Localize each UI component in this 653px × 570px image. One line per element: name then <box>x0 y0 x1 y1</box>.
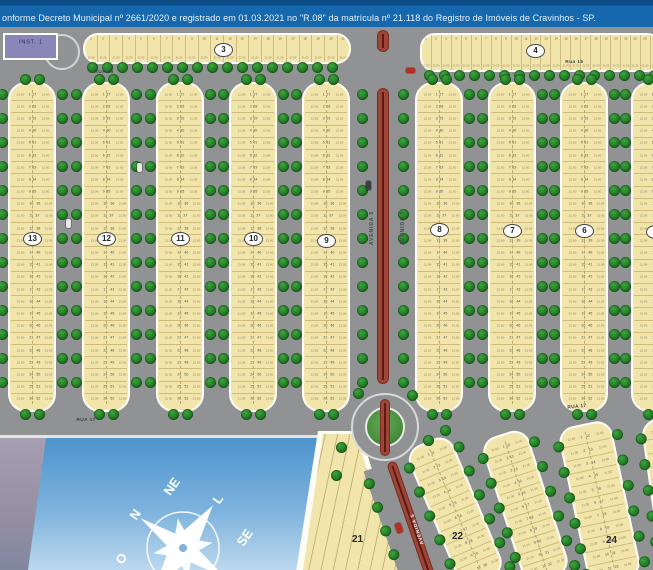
lot-dim-label: 21.00 <box>449 191 457 194</box>
lot-row: 21.00144021.00 <box>491 246 533 258</box>
tree-icon <box>117 62 128 73</box>
lot-dim-label: 21.00 <box>569 178 577 181</box>
lot-row: 21.00164221.00 <box>563 271 605 283</box>
lot-number: 5 <box>323 142 325 145</box>
lot-dim-label: 21.00 <box>311 178 319 181</box>
lot-row: 21.0043021.00 <box>232 125 274 137</box>
lot-row: 21.0093521.00 <box>232 186 274 198</box>
tree-icon <box>452 440 466 454</box>
lot-dim-label: 21.00 <box>119 337 127 340</box>
lot-dim-label: 21.00 <box>569 312 577 315</box>
lot-dim-label: 21.00 <box>339 215 347 218</box>
lot-row: 21.00204621.00 <box>85 320 127 332</box>
lot-row: 21.00224821.00 <box>305 344 347 356</box>
lot-number: 11 <box>581 215 585 218</box>
tree-icon <box>205 377 216 388</box>
lot-number: 36 <box>257 203 261 206</box>
lot-number: 15 <box>29 263 33 266</box>
lot-row: 21.00103621.00 <box>491 198 533 210</box>
tree-icon <box>477 113 488 124</box>
tree-icon <box>182 409 193 420</box>
lot-row: 21.00224821.00 <box>491 344 533 356</box>
lot-number: 21 <box>342 38 345 41</box>
lot-dim-label: 21.00 <box>311 191 319 194</box>
lot-dim-label: 21.00 <box>119 398 127 401</box>
lot-dim-label: 21.00 <box>449 154 457 157</box>
lot-dim-label: 21.00 <box>165 398 173 401</box>
lot-cell: 821.00 <box>491 35 501 70</box>
tree-icon <box>205 89 216 100</box>
lot-dim-label: 21.00 <box>91 203 99 206</box>
lot-number: 48 <box>184 349 188 352</box>
lot-number: 38 <box>110 227 114 230</box>
tree-icon <box>462 464 476 478</box>
lot-dim-label: 21.00 <box>42 154 50 157</box>
lot-row: 21.0022821.00 <box>491 100 533 112</box>
lot-dim-label: 21.00 <box>119 215 127 218</box>
lot-number: 27 <box>327 93 331 96</box>
lot-number: 34 <box>585 178 589 181</box>
lot-row: 21.00164221.00 <box>159 271 201 283</box>
lot-dim-label: 21.00 <box>311 361 319 364</box>
lot-dim-label: 21.00 <box>263 105 271 108</box>
lot-dim-label: 21.00 <box>238 264 246 267</box>
lot-number: 36 <box>588 203 592 206</box>
lot-number: 32 <box>33 154 37 157</box>
tree-icon <box>57 161 68 172</box>
tree-icon <box>537 209 548 220</box>
lot-number: 32 <box>181 154 185 157</box>
tree-icon <box>278 353 289 364</box>
lot-dim-label: 21.00 <box>91 349 99 352</box>
lot-number: 6 <box>581 154 583 157</box>
tree-icon <box>57 89 68 100</box>
lot-row: 21.00234921.00 <box>634 356 653 368</box>
lot-dim-label: 21.00 <box>552 65 559 68</box>
tree-icon <box>34 409 45 420</box>
lot-row: 21.00194521.00 <box>232 307 274 319</box>
lot-row: 21.00174321.00 <box>563 283 605 295</box>
lot-dim-label: 21.00 <box>640 191 648 194</box>
lot-dim-label: 21.00 <box>472 522 480 528</box>
lot-row: 21.00234921.00 <box>85 356 127 368</box>
lot-number: 43 <box>36 288 40 291</box>
lot-number: 27 <box>33 93 37 96</box>
lot-dim-label: 21.00 <box>193 361 201 364</box>
lot-number: 31 <box>440 142 444 145</box>
tree-icon <box>611 428 624 441</box>
tree-icon <box>549 281 560 292</box>
lot-number: 11 <box>509 215 513 218</box>
lot-number: 25 <box>177 385 181 388</box>
lot-dim-label: 21.00 <box>584 516 592 520</box>
lot-dim-label: 21.00 <box>91 361 99 364</box>
lot-row: 21.0043021.00 <box>11 125 53 137</box>
lot-row: 21.0032921.00 <box>563 112 605 124</box>
tree-icon <box>0 305 8 316</box>
lot-cell: 721.00 <box>160 35 173 62</box>
tree-icon <box>328 74 339 85</box>
lot-number: 43 <box>110 288 114 291</box>
tree-icon <box>168 74 179 85</box>
lot-dim-label: 21.00 <box>311 312 319 315</box>
lot-dim-label: 21.00 <box>424 93 432 96</box>
lot-row: 21.00194521.00 <box>85 307 127 319</box>
lot-number: 25 <box>250 385 254 388</box>
lot-number: 7 <box>103 166 105 169</box>
lot-row: 21.00103621.00 <box>159 198 201 210</box>
lot-dim-label: 21.00 <box>511 507 519 512</box>
lot-row: 21.00194521.00 <box>563 307 605 319</box>
lot-dim-label: 21.00 <box>522 105 530 108</box>
lot-dim-label: 21.00 <box>193 276 201 279</box>
lot-dim-label: 21.00 <box>525 349 533 352</box>
lot-number: 31 <box>585 142 589 145</box>
lot-number: 26 <box>177 398 181 401</box>
lot-dim-label: 21.00 <box>45 264 53 267</box>
lot-dim-label: 21.00 <box>336 166 344 169</box>
lot-dim-label: 21.00 <box>449 105 457 108</box>
lot-dim-label: 21.00 <box>336 142 344 145</box>
tree-icon <box>622 479 635 492</box>
lot-dim-label: 21.00 <box>17 166 25 169</box>
lot-dim-label: 21.00 <box>640 373 648 376</box>
lot-dim-label: 21.00 <box>311 227 319 230</box>
tree-icon <box>71 281 82 292</box>
tree-icon <box>609 257 620 268</box>
lot-number: 8 <box>530 529 533 533</box>
tree-icon <box>0 233 8 244</box>
tree-icon <box>398 305 409 316</box>
lot-number: 23 <box>509 361 513 364</box>
tree-icon <box>218 161 229 172</box>
lot-dim-label: 21.00 <box>17 361 25 364</box>
block-6: 21.0012721.0021.0022821.0021.0032921.002… <box>560 82 608 412</box>
lot-cell: 1421.00 <box>248 35 261 62</box>
lot-number: 8 <box>495 38 497 41</box>
lot-number: 42 <box>36 276 40 279</box>
tree-icon <box>57 185 68 196</box>
tree-icon <box>218 209 229 220</box>
tree-icon <box>278 113 289 124</box>
lot-dim-label: 21.00 <box>266 227 274 230</box>
lot-number: 10 <box>581 203 585 206</box>
lot-dim-label: 21.00 <box>582 65 589 68</box>
tree-icon <box>642 484 653 496</box>
lot-number: 7 <box>166 38 168 41</box>
lot-dim-label: 21.00 <box>311 117 319 120</box>
lot-number: 43 <box>257 288 261 291</box>
tree-icon <box>131 209 142 220</box>
lot-dim-label: 21.00 <box>193 239 201 242</box>
lot-dim-label: 21.00 <box>569 264 577 267</box>
lot-number: 10 <box>323 203 327 206</box>
lot-dim-label: 21.00 <box>482 547 490 553</box>
lot-dim-label: 21.00 <box>165 361 173 364</box>
lot-number: 4 <box>436 129 438 132</box>
lot-dim-label: 21.00 <box>336 130 344 133</box>
lot-number: 49 <box>330 361 334 364</box>
lot-number: 28 <box>440 105 444 108</box>
lot-number: 6 <box>594 501 597 505</box>
lot-row: 21.00255121.00 <box>232 381 274 393</box>
lot-number: 19 <box>29 312 33 315</box>
lot-dim-label: 21.00 <box>266 361 274 364</box>
lot-dim-label: 21.00 <box>424 373 432 376</box>
lot-dim-label: 21.00 <box>238 325 246 328</box>
lot-dim-label: 21.00 <box>238 349 246 352</box>
lot-row: 21.00184421.00 <box>491 295 533 307</box>
tree-icon <box>464 353 475 364</box>
lot-number: 9 <box>177 190 179 193</box>
lot-row: 21.00214721.00 <box>418 332 460 344</box>
lot-number: 27 <box>181 93 185 96</box>
lot-number: 1 <box>581 436 584 440</box>
tree-icon <box>609 185 620 196</box>
lot-dim-label: 21.00 <box>17 264 25 267</box>
lot-dim-label: 21.00 <box>165 349 173 352</box>
tree-icon <box>469 70 480 81</box>
lot-number: 15 <box>323 263 327 266</box>
institutional-area-block: INST. 1 <box>3 33 58 60</box>
lot-dim-label: 21.00 <box>238 203 246 206</box>
lot-number: 49 <box>36 361 40 364</box>
tree-icon <box>162 62 173 73</box>
tree-icon <box>71 161 82 172</box>
lot-dim-label: 21.00 <box>165 264 173 267</box>
lot-row: 21.0063221.00 <box>491 149 533 161</box>
lot-row: 21.00224821.00 <box>418 344 460 356</box>
lot-row: 21.0032921.00 <box>634 112 653 124</box>
tree-icon <box>604 70 615 81</box>
lot-cell: 221.00 <box>97 35 110 62</box>
lot-dim-label: 21.00 <box>497 373 505 376</box>
lot-dim-label: 21.00 <box>263 117 271 120</box>
tree-icon <box>537 113 548 124</box>
tree-icon <box>182 74 193 85</box>
lot-row: 21.00224821.00 <box>563 344 605 356</box>
lot-number: 10 <box>509 203 513 206</box>
lot-dim-label: 21.00 <box>311 288 319 291</box>
lot-row: 21.00214721.00 <box>159 332 201 344</box>
lot-number: 4 <box>514 481 517 485</box>
lot-number: 35 <box>440 190 444 193</box>
tree-icon <box>218 257 229 268</box>
tree-icon <box>297 62 308 73</box>
lot-number: 3 <box>115 38 117 41</box>
lot-dim-label: 21.00 <box>569 142 577 145</box>
lot-dim-label: 21.00 <box>119 252 127 255</box>
tree-icon <box>620 113 631 124</box>
tree-icon <box>145 185 156 196</box>
lot-dim-label: 21.00 <box>597 227 605 230</box>
lot-dim-label: 21.00 <box>289 57 296 60</box>
lot-row: 21.0083421.00 <box>85 173 127 185</box>
lot-row: 21.00123821.00 <box>305 222 347 234</box>
lot-dim-label: 21.00 <box>151 57 158 60</box>
tree-icon <box>71 233 82 244</box>
lot-dim-label: 21.00 <box>42 105 50 108</box>
lot-dim-label: 21.00 <box>165 105 173 108</box>
lot-dim-label: 21.00 <box>424 264 432 267</box>
lot-number: 33 <box>33 166 37 169</box>
lot-row: 21.00204621.00 <box>563 320 605 332</box>
lot-dim-label: 21.00 <box>45 252 53 255</box>
lot-number: 22 <box>581 349 585 352</box>
lot-dim-label: 21.00 <box>263 178 271 181</box>
lot-row: 21.00174321.00 <box>305 283 347 295</box>
lot-dim-label: 21.00 <box>518 531 526 536</box>
lot-number: 29 <box>327 117 331 120</box>
lot-number: 41 <box>516 263 520 266</box>
lot-dim-label: 21.00 <box>569 373 577 376</box>
lot-dim-label: 21.00 <box>119 349 127 352</box>
lot-row: 21.00113721.00 <box>491 210 533 222</box>
lot-dim-label: 21.00 <box>339 325 347 328</box>
lot-number: 17 <box>581 288 585 291</box>
lot-number: 18 <box>594 38 597 41</box>
lot-number: 36 <box>516 203 520 206</box>
lot-dim-label: 21.00 <box>452 398 460 401</box>
lot-dim-label: 21.00 <box>612 65 619 68</box>
lot-dim-label: 21.00 <box>311 130 319 133</box>
lot-number: 14 <box>447 489 452 494</box>
lot-row: 21.0032921.00 <box>418 112 460 124</box>
lot-dim-label: 21.00 <box>263 142 271 145</box>
lot-number: 52 <box>516 398 520 401</box>
lot-number: 27 <box>254 93 258 96</box>
lot-dim-label: 21.00 <box>91 312 99 315</box>
lot-number: 31 <box>327 142 331 145</box>
lot-number: 29 <box>585 117 589 120</box>
lot-dim-label: 21.00 <box>165 373 173 376</box>
lot-number: 48 <box>516 349 520 352</box>
lot-dim-label: 21.00 <box>640 142 648 145</box>
lot-dim-label: 21.00 <box>336 191 344 194</box>
lot-dim-label: 21.00 <box>569 239 577 242</box>
lot-number: 29 <box>440 117 444 120</box>
lot-number: 36 <box>184 203 188 206</box>
lot-dim-label: 21.00 <box>238 361 246 364</box>
lot-number: 22 <box>29 349 33 352</box>
lot-number: 14 <box>177 251 181 254</box>
lot-number: 8 <box>103 178 105 181</box>
lot-dim-label: 21.00 <box>454 544 462 550</box>
lot-dim-label: 21.00 <box>17 349 25 352</box>
lot-number: 27 <box>107 93 111 96</box>
lot-number: 13 <box>436 239 440 242</box>
lot-number: 33 <box>513 166 517 169</box>
tree-icon <box>291 89 302 100</box>
lot-number: 21 <box>581 337 585 340</box>
lot-dim-label: 21.00 <box>569 288 577 291</box>
lot-number: 52 <box>257 398 261 401</box>
lot-row: 21.00154121.00 <box>232 259 274 271</box>
lot-number: 46 <box>36 324 40 327</box>
tree-icon <box>71 113 82 124</box>
lot-dim-label: 21.00 <box>42 130 50 133</box>
lot-number: 47 <box>257 337 261 340</box>
lot-dim-label: 21.00 <box>525 203 533 206</box>
tree-icon <box>132 62 143 73</box>
lot-row: 21.00154121.00 <box>159 259 201 271</box>
lot-dim-label: 21.00 <box>311 215 319 218</box>
lot-dim-label: 21.00 <box>525 373 533 376</box>
lot-number: 33 <box>585 166 589 169</box>
lot-row: 21.00234921.00 <box>418 356 460 368</box>
tree-icon <box>57 209 68 220</box>
lot-row: 21.00204621.00 <box>305 320 347 332</box>
lot-row: 21.0063221.00 <box>418 149 460 161</box>
lot-dim-label: 21.00 <box>263 154 271 157</box>
lot-number: 34 <box>327 178 331 181</box>
lot-number: 28 <box>254 105 258 108</box>
lot-row: 21.0053121.00 <box>232 137 274 149</box>
lot-dim-label: 21.00 <box>116 154 124 157</box>
institutional-area-label: INST. 1 <box>19 40 43 46</box>
lot-row: 21.00204621.00 <box>418 320 460 332</box>
lot-number: 6 <box>509 154 511 157</box>
lot-number: 3 <box>509 117 511 120</box>
lot-number: 42 <box>443 276 447 279</box>
lot-number: 10 <box>203 38 206 41</box>
lot-cell: 2021.00 <box>324 35 337 62</box>
lot-dim-label: 21.00 <box>592 65 599 68</box>
lot-number: 52 <box>588 398 592 401</box>
tree-icon <box>477 137 488 148</box>
tree-icon <box>0 329 8 340</box>
lot-dim-label: 21.00 <box>594 154 602 157</box>
lot-row: 21.00265221.00 <box>85 393 127 405</box>
lot-number: 20 <box>509 324 513 327</box>
avenue-median-main <box>377 88 389 384</box>
lot-number: 22 <box>177 349 181 352</box>
lot-number: 30 <box>440 129 444 132</box>
lot-row: 21.0083421.00 <box>563 173 605 185</box>
lot-cell: 421.00 <box>451 35 461 70</box>
tree-icon <box>205 305 216 316</box>
lot-dim-label: 21.00 <box>116 93 124 96</box>
lot-dim-label: 21.00 <box>113 57 120 60</box>
lot-dim-label: 21.00 <box>17 312 25 315</box>
lot-dim-label: 21.00 <box>640 312 648 315</box>
lot-number: 8 <box>600 527 603 531</box>
lot-number: 3 <box>436 117 438 120</box>
lot-dim-label: 21.00 <box>17 105 25 108</box>
tree-icon <box>620 161 631 172</box>
lot-row: 21.0083421.00 <box>232 173 274 185</box>
tree-icon <box>398 161 409 172</box>
tree-icon <box>353 388 364 399</box>
lot-row: 21.00113721.00 <box>305 210 347 222</box>
tree-icon <box>500 74 511 85</box>
tree-icon <box>218 377 229 388</box>
lot-number: 3 <box>29 117 31 120</box>
lot-dim-label: 21.00 <box>613 510 621 514</box>
lot-dim-label: 21.00 <box>190 166 198 169</box>
lot-dim-label: 21.00 <box>542 524 550 529</box>
lot-dim-label: 21.00 <box>497 142 505 145</box>
lot-number: 13 <box>442 476 447 481</box>
lot-number: 6 <box>522 505 525 509</box>
lot-dim-label: 21.00 <box>569 203 577 206</box>
lot-dim-label: 21.00 <box>424 276 432 279</box>
tree-icon <box>477 353 488 364</box>
tree-icon <box>278 233 289 244</box>
lot-dim-label: 21.00 <box>642 65 649 68</box>
lot-number: 32 <box>327 154 331 157</box>
lot-number: 15 <box>436 263 440 266</box>
